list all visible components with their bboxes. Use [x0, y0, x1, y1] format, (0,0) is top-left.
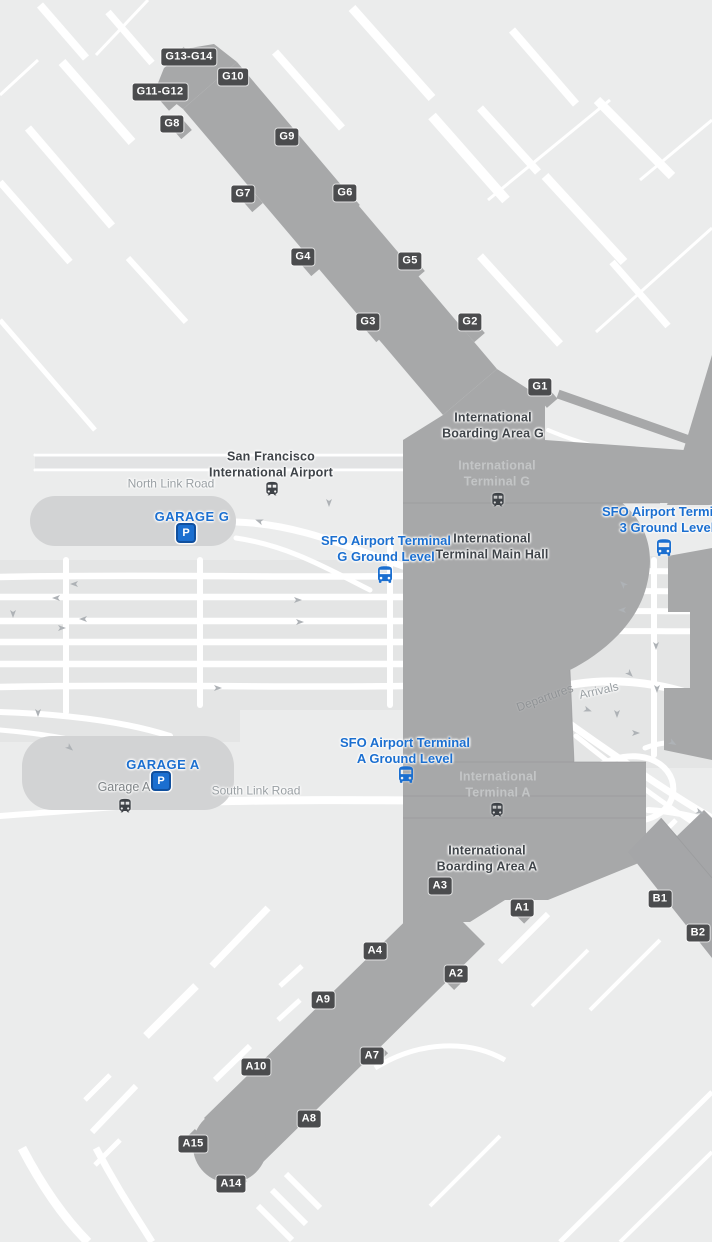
airport-name-label: San FranciscoInternational Airport — [209, 449, 333, 480]
terminal-g-shuttle-label-line: G Ground Level — [321, 549, 451, 565]
arrivals-label: Arrivals — [578, 679, 620, 703]
arrivals-label-line: Arrivals — [578, 679, 620, 703]
north-link-road-label: North Link Road — [128, 477, 215, 492]
terminal-3-shuttle-label-line: 3 Ground Level — [602, 520, 712, 536]
gate-badge-g10[interactable]: G10 — [218, 69, 248, 86]
gate-badge-g13-g14[interactable]: G13-G14 — [161, 49, 216, 66]
map-overlay-layer: G13-G14G10G11-G12G8G9G7G6G4G5G3G2G1A3A1B… — [0, 0, 712, 1242]
shuttle-bus-stop-icon[interactable] — [396, 765, 417, 786]
airtrain-station-icon[interactable] — [264, 481, 281, 498]
terminal-3-shuttle-label-line: SFO Airport Terminal — [602, 504, 712, 520]
boarding-area-a-label: InternationalBoarding Area A — [437, 843, 538, 874]
boarding-area-a-label-line: Boarding Area A — [437, 859, 538, 875]
boarding-area-g-label-line: Boarding Area G — [442, 426, 544, 442]
shuttle-bus-stop-icon[interactable] — [375, 565, 396, 586]
gate-badge-a2[interactable]: A2 — [445, 966, 468, 983]
gate-badge-a4[interactable]: A4 — [364, 943, 387, 960]
gate-badge-b1[interactable]: B1 — [649, 891, 672, 908]
gate-badge-g2[interactable]: G2 — [458, 314, 481, 331]
terminal-a-shuttle-label-line: SFO Airport Terminal — [340, 735, 470, 751]
gate-badge-g1[interactable]: G1 — [528, 379, 551, 396]
terminal-g-label-line: International — [458, 458, 536, 474]
gate-badge-a15[interactable]: A15 — [178, 1136, 207, 1153]
garage-a-station-label: Garage A — [98, 780, 151, 796]
terminal-g-label: InternationalTerminal G — [458, 458, 536, 489]
shuttle-bus-stop-icon[interactable] — [654, 538, 675, 559]
terminal-3-shuttle-label[interactable]: SFO Airport Terminal3 Ground Level — [602, 504, 712, 537]
terminal-g-label-line: Terminal G — [458, 474, 536, 490]
gate-badge-a3[interactable]: A3 — [429, 878, 452, 895]
terminal-a-label: InternationalTerminal A — [459, 769, 537, 800]
gate-badge-b2[interactable]: B2 — [687, 925, 710, 942]
boarding-area-g-label-line: International — [442, 410, 544, 426]
gate-badge-g4[interactable]: G4 — [291, 249, 314, 266]
departures-label-line: Departures — [515, 681, 576, 715]
gate-badge-a10[interactable]: A10 — [241, 1059, 270, 1076]
departures-label: Departures — [515, 681, 576, 715]
boarding-area-a-label-line: International — [437, 843, 538, 859]
airport-map[interactable]: G13-G14G10G11-G12G8G9G7G6G4G5G3G2G1A3A1B… — [0, 0, 712, 1242]
gate-badge-g8[interactable]: G8 — [160, 116, 183, 133]
gate-badge-g5[interactable]: G5 — [398, 253, 421, 270]
gate-badge-a7[interactable]: A7 — [361, 1048, 384, 1065]
parking-icon[interactable]: P — [151, 771, 171, 791]
gate-badge-a1[interactable]: A1 — [511, 900, 534, 917]
gate-badge-g7[interactable]: G7 — [231, 186, 254, 203]
terminal-a-label-line: Terminal A — [459, 785, 537, 801]
airport-name-label-line: International Airport — [209, 465, 333, 481]
airtrain-station-icon[interactable] — [490, 492, 507, 509]
gate-badge-g6[interactable]: G6 — [333, 185, 356, 202]
terminal-g-shuttle-label[interactable]: SFO Airport TerminalG Ground Level — [321, 533, 451, 566]
gate-badge-a8[interactable]: A8 — [298, 1111, 321, 1128]
terminal-main-hall-label-line: International — [435, 531, 548, 547]
terminal-main-hall-label: InternationalTerminal Main Hall — [435, 531, 548, 562]
gate-badge-a14[interactable]: A14 — [216, 1176, 245, 1193]
gate-badge-g11-g12[interactable]: G11-G12 — [133, 84, 188, 101]
terminal-main-hall-label-line: Terminal Main Hall — [435, 547, 548, 563]
boarding-area-g-label: InternationalBoarding Area G — [442, 410, 544, 441]
gate-badge-g9[interactable]: G9 — [275, 129, 298, 146]
airport-name-label-line: San Francisco — [209, 449, 333, 465]
terminal-a-shuttle-label[interactable]: SFO Airport TerminalA Ground Level — [340, 735, 470, 768]
south-link-road-label: South Link Road — [212, 784, 301, 799]
gate-badge-a9[interactable]: A9 — [312, 992, 335, 1009]
garage-a-station-label-line: Garage A — [98, 780, 151, 796]
south-link-road-label-line: South Link Road — [212, 784, 301, 799]
terminal-g-shuttle-label-line: SFO Airport Terminal — [321, 533, 451, 549]
airtrain-station-icon[interactable] — [489, 802, 506, 819]
north-link-road-label-line: North Link Road — [128, 477, 215, 492]
airtrain-station-icon[interactable] — [117, 798, 134, 815]
gate-badge-g3[interactable]: G3 — [356, 314, 379, 331]
terminal-a-label-line: International — [459, 769, 537, 785]
parking-icon[interactable]: P — [176, 523, 196, 543]
